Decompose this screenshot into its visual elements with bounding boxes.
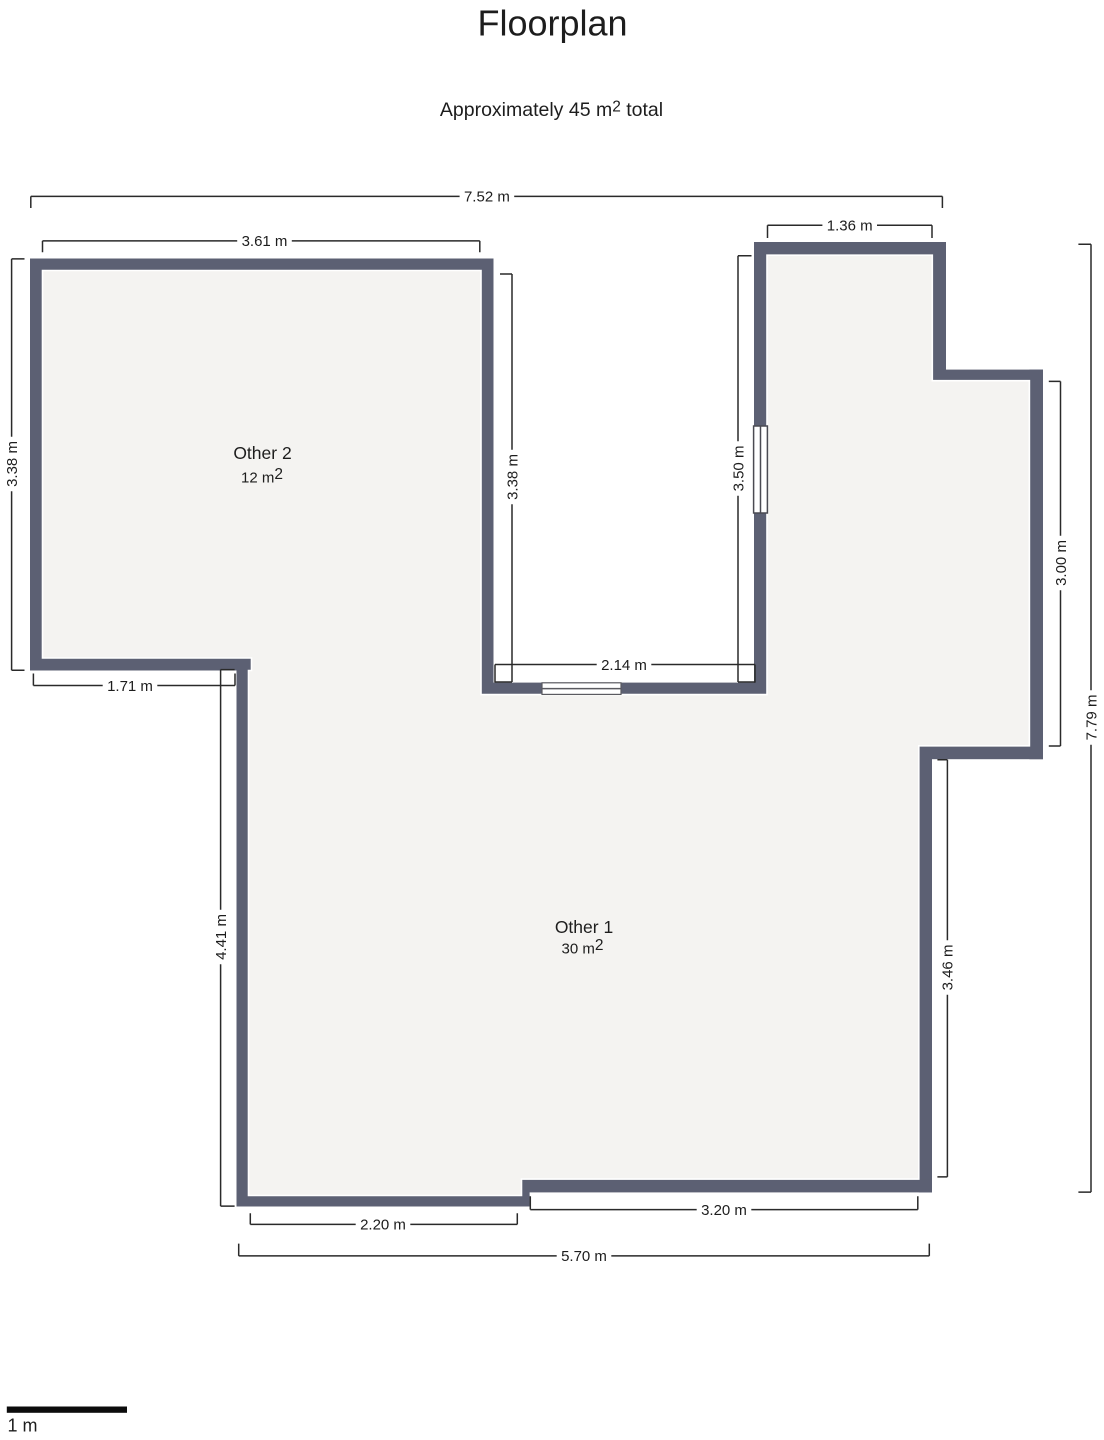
svg-text:3.20 m: 3.20 m	[701, 1202, 747, 1219]
svg-text:3.38 m: 3.38 m	[504, 454, 521, 500]
svg-text:3.61 m: 3.61 m	[242, 233, 288, 250]
svg-text:7.52 m: 7.52 m	[464, 189, 510, 206]
svg-text:3.00 m: 3.00 m	[1053, 540, 1070, 586]
svg-text:3.38 m: 3.38 m	[4, 441, 21, 487]
svg-text:2.14 m: 2.14 m	[601, 657, 647, 674]
svg-text:4.41 m: 4.41 m	[213, 914, 230, 960]
svg-text:1.36 m: 1.36 m	[827, 218, 873, 235]
svg-text:Floorplan: Floorplan	[477, 3, 627, 44]
svg-text:1 m: 1 m	[8, 1416, 38, 1436]
svg-text:3.46 m: 3.46 m	[940, 945, 957, 991]
svg-text:2.20 m: 2.20 m	[360, 1217, 406, 1234]
svg-text:Other 1: Other 1	[555, 917, 613, 937]
svg-text:3.50 m: 3.50 m	[730, 446, 747, 492]
svg-text:Other 2: Other 2	[233, 443, 291, 463]
svg-text:Approximately 45 m2 total: Approximately 45 m2 total	[440, 99, 663, 122]
svg-text:7.79 m: 7.79 m	[1083, 695, 1100, 741]
svg-text:1.71 m: 1.71 m	[107, 678, 153, 695]
svg-text:5.70 m: 5.70 m	[561, 1248, 607, 1265]
